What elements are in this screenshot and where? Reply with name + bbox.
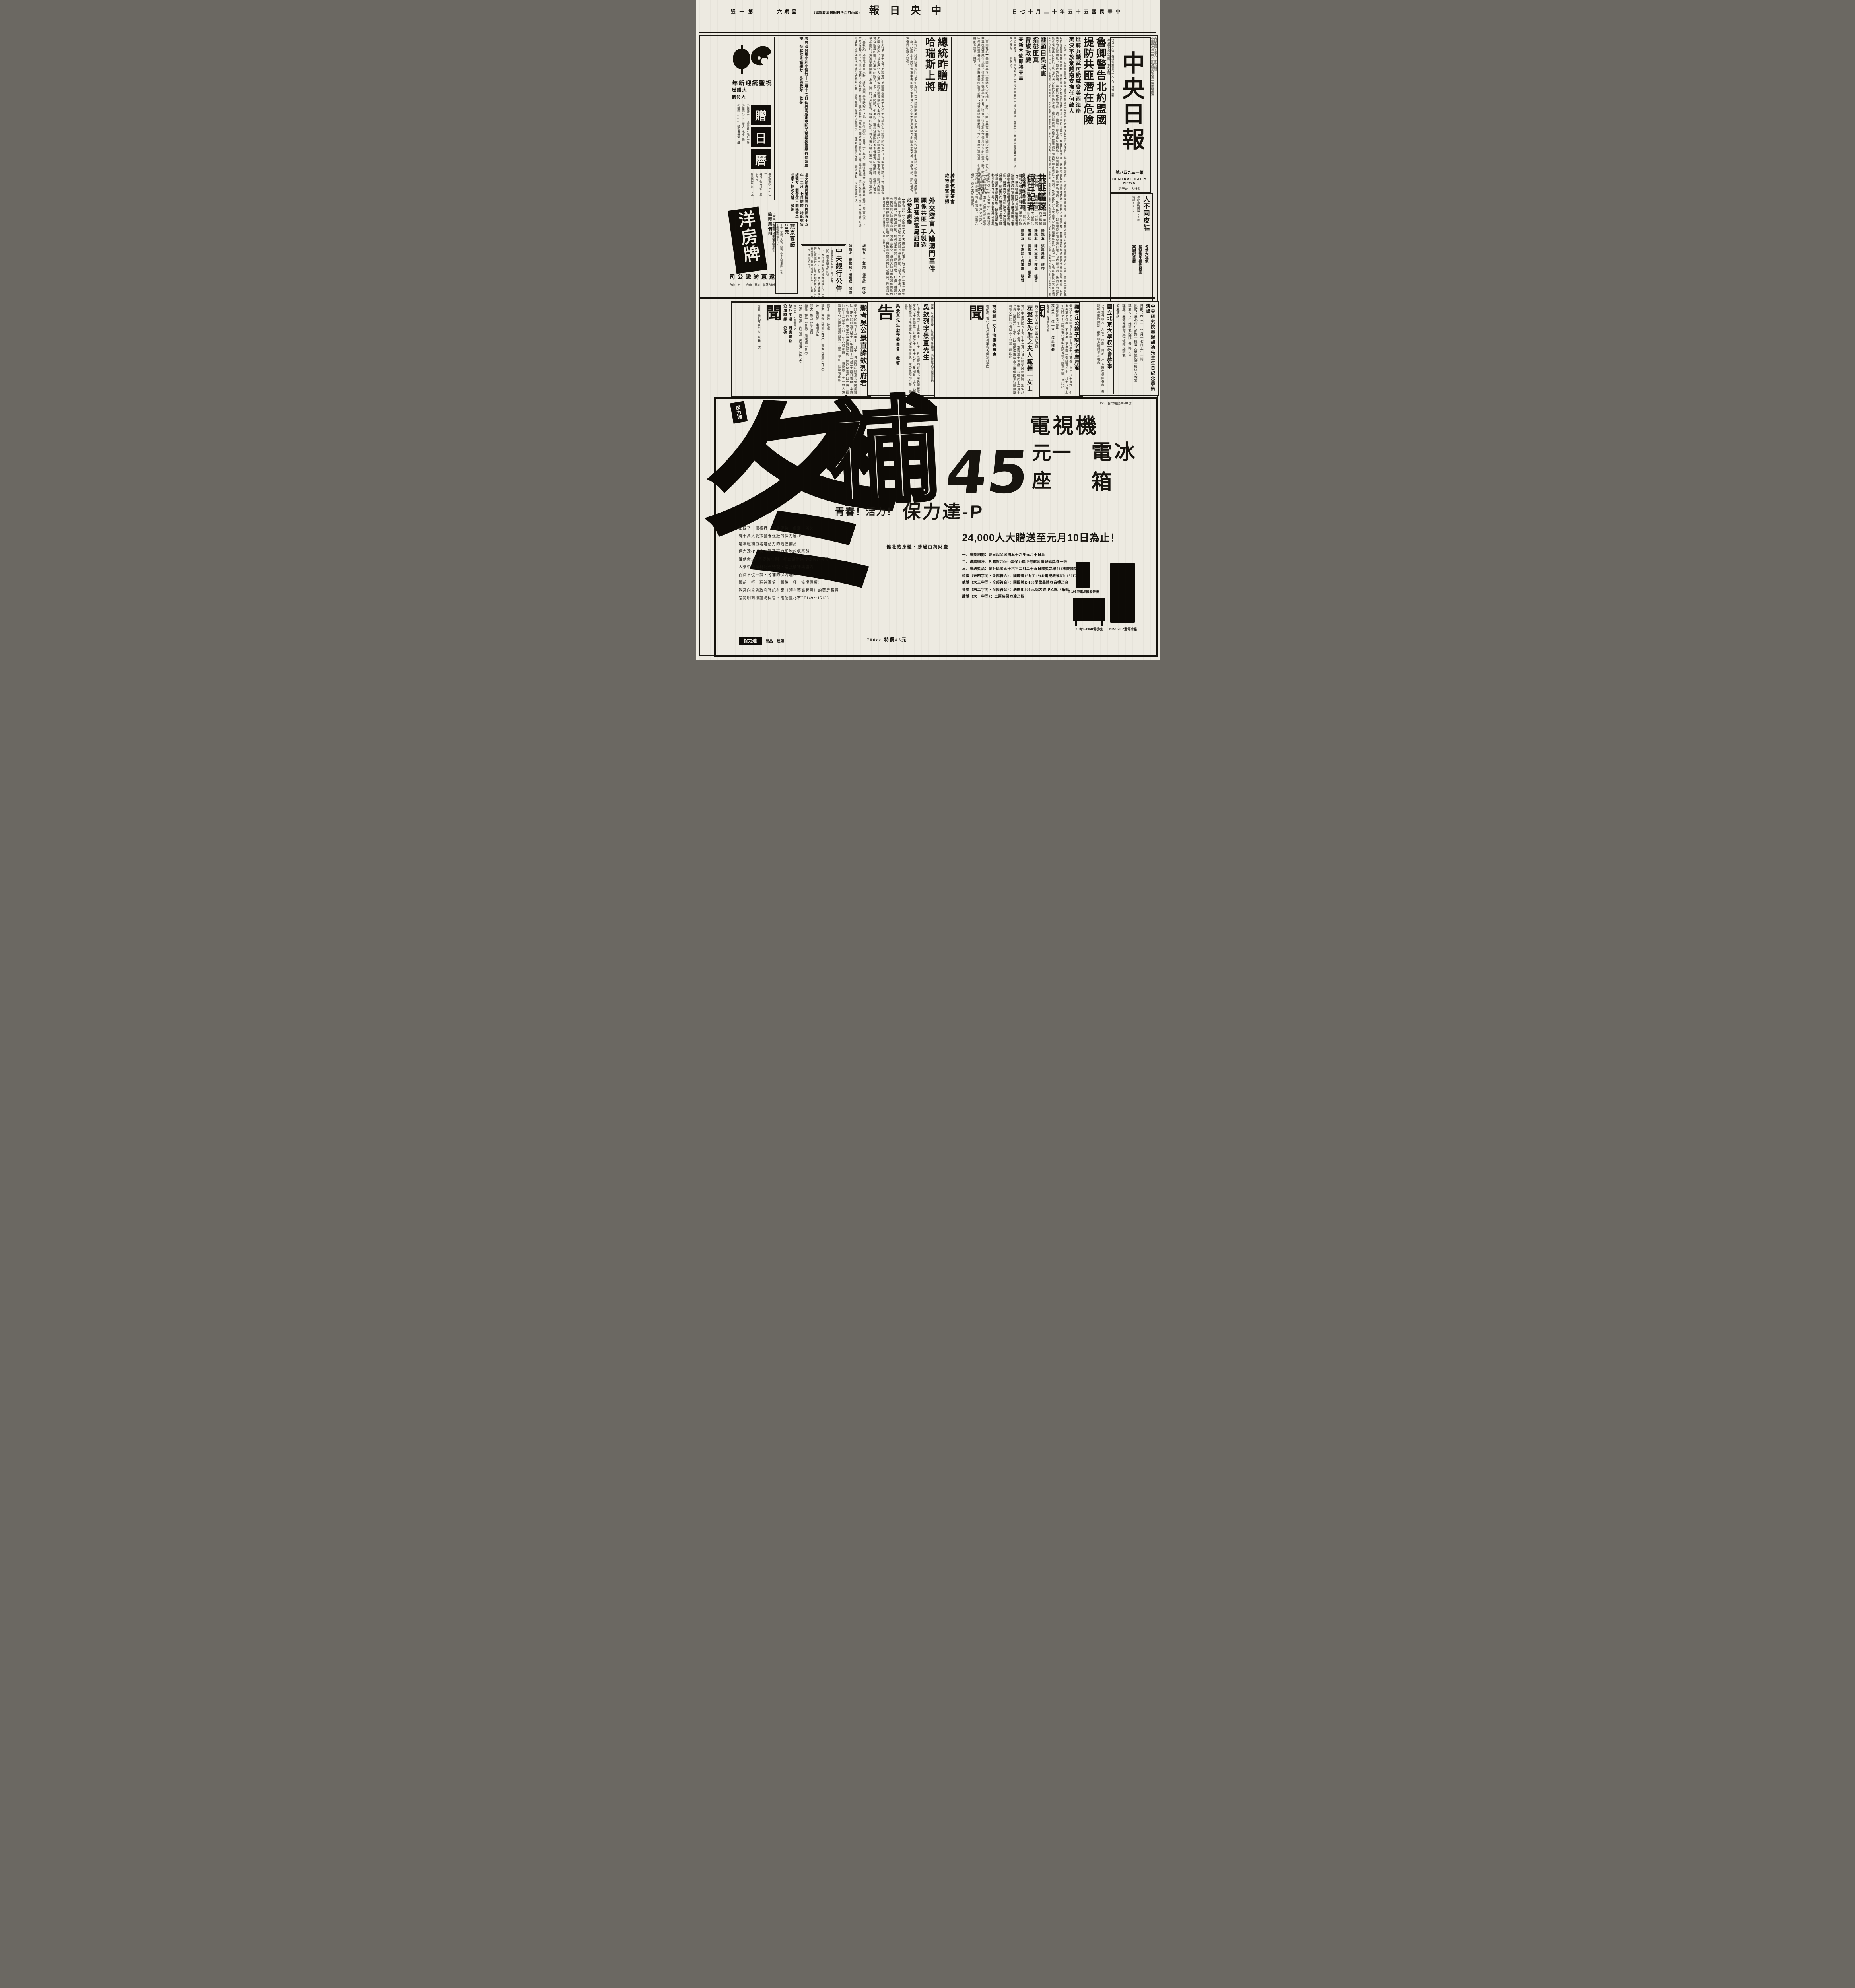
masthead-price: 今日二大張 每份售新臺幣一元二角 港幣二毫 [1110,39,1113,165]
bank-side-notice: 諸親友 鄭盛杞・張理房 謹啓 [843,244,853,296]
lead-headline-2: 提防共匪潛在危險 [1082,37,1093,297]
harris-headline-1: 總統昨贈勳 [936,37,947,195]
yanjing-price: 20元 [784,224,789,292]
fridge-caption: NR-150FZ型電冰箱 [1105,627,1141,631]
shoes-ad-phone: 電話6579 [1132,196,1136,243]
obituary-wugao-titles: 前兵工生產署署長 行政院經合會顧問 高雄硫酸錏公司董事長 [930,304,934,394]
prize-rule-row: 肆獎（末一字同）：二兩裝保力達乙瓶 [962,593,1090,600]
gift-item: ③購滿一○○○元贈毛巾禮盒一組 [736,104,740,196]
lead-subhead-1: 匪窮兵黷武可能威脅美西海岸 [1075,37,1080,297]
header-rule [699,32,1156,33]
bank-notice-docno: （55）臺央業字第1560號 [825,247,829,299]
bolida-winter-ad: （55）台財稅證09991號 保力達 冬 補 電視機 45 元一座 電冰箱 青春… [714,397,1158,657]
special-price-item: 男厚絨襯衫 二九七元 [763,173,771,198]
greeting-notice: 諸親友 陳林宜慧・陳健 謹啓 [1034,229,1039,296]
ad-copy-line: 歡迎向全省政府登記有案（領有藥商牌照）的藥房購買 [739,587,878,595]
harris-headline-group: 總統昨贈勳 哈瑞斯上將 [919,37,952,195]
tv-leg-left [1075,621,1077,626]
wedding-notice-1: 次男海與馬小利小姐於十二月十七日在美國威州克利夫蘭城教堂舉行結婚典禮 特此敬告諸… [777,37,809,170]
harris-headline-2: 哈瑞斯上將 [924,37,935,195]
family-member-row: 未亡人 吳夏承玖 [793,304,797,394]
winter-sale-line: 冬季大減價 [1144,245,1150,299]
family-member-row: 孤女 南強（適許・在美） 東安（適周・在美） [821,304,825,394]
harris-story: 【軍聞社訊】美國太平洋空軍總司令哈瑞斯上將，已結束其在中華民國的訪問日程，定於十… [868,37,990,195]
yanjing-sellers: 正中、文源、文化、幼獅、中央文物供應社有售 [779,224,783,292]
header-strip: 張一第 六期星 （誌雜期星送附日今戶訂內國） 報日央中 日七十月二十年五十五國民… [696,0,1160,21]
obituary-wu-mourner: 泣血稽顙 泣啓 [783,304,787,394]
obituary-jiang-note: 閤族均陷不陸不列載 [1055,304,1059,394]
ad-copy-line: 保力達-P・含有製造精力細胞的氨基酸 [739,548,878,556]
extra-notice: 諸親友 于高翔・偶雷琪 敬啓 [855,244,866,296]
ad-copy-line: 有十萬人愛飲營養強壯的保力達-P [739,533,878,540]
tv-silhouette [1073,598,1105,621]
santa-promo-label: 送贈大 [732,88,773,93]
ad-outline-character-bu: 補 [824,394,943,513]
section-label: 張一第 [731,8,757,15]
ad-copy-lines: 忙碌了一個禮拜・全身疲勞・虛弱・倦怠有十萬人愛飲營養強壯的保力達-P是年輕補血增… [739,525,878,603]
paper-title-horizontal: 報日央中 [869,2,952,17]
lead-subhead-2: 美決不放棄越南安撫任何敵人 [1068,37,1074,297]
ad-bottom-label-1: 出品 [766,638,773,643]
news-text-column: 【本報訊】外交部發言人昨天論及澳門事件時指出：此一事件顯係由共匪一手製造，圖迫葡… [809,37,866,227]
gift-item: ②購滿八○○元贈大方毛巾一條 [741,104,745,196]
academia-title: 中央研究院舉辦胡適先生生日紀念學術演講 [1145,304,1155,394]
expel-subhead: 說他們造謠誹謗 [1020,173,1025,227]
macau-story: 外交發言人論澳門事件 顯係共匪一手製造 圖迫葡澳當局屈服 必發生劇變 【本報訊】… [868,197,936,296]
harris-body-right: 【軍聞社訊】美國太平洋空軍總司令哈瑞斯上將，已結束其在中華民國的訪問日程，定於十… [954,37,989,195]
peng-headline-line1: 匪頭目吳法憲 [1039,37,1046,172]
bank-notice-title: 中央銀行公告 [834,247,841,299]
calendar-character: 日 [751,127,771,147]
fridge-silhouette [1110,563,1135,623]
peng-sidehead: 委新大使即將來華 [1018,37,1023,172]
weekday-label: 六期星 [777,8,799,15]
peng-body: 匪偽廣播稱，彭匪真在所謂「文化大革命」中被指曾謀「政變」；共匪內部清算鬥爭，現已… [1005,37,1017,172]
yanjing-account: 郵撥七一三六號栗明德帳戶 [771,224,775,292]
prize-rule-row: 頭獎（末四字同・全部符合）：國際牌19吋T-196D電視機或NR-150FZ（白… [962,573,1090,580]
santa-special-label: 價特大 [732,95,746,100]
peng-headline-line2: 指彭匪真 [1032,37,1038,172]
macau-subhead-2: 圖迫葡澳當局屈服 [913,197,919,296]
macau-body: 【本報訊】外交部發言人昨天論及澳門事件時指出：此一事件顯係由共匪一手製造，圖迫葡… [883,197,905,296]
ad-copy-line: 請認明商標謹防假冒・電話臺北市FE149～15138 [739,595,878,602]
column-rule [1047,37,1048,297]
bank-notice-date: 中華民國五十五年十二月十五日 [829,247,833,299]
academia-detail-line: 歡迎聽講 [1115,304,1120,394]
beida-title: 國立北京大學校友會啓事 [1106,304,1114,394]
obituary-zuo-header: 左潞生先生之夫人臧鍾一女士 [1026,305,1033,394]
yangfang-brand-box: 洋房牌 [728,206,767,274]
ad-slogan-prefix: 青春！活力！ [835,504,897,518]
macau-headline: 外交發言人論澳門事件 [927,197,934,296]
ad-copy-line: 百病不侵一試・冬補的保力達-P [739,572,878,579]
family-member-row: 孤子 鑄遠 鍊遠 [826,304,831,394]
prize-rule-row: 三、贈送獎品：統計民國五十六年二月二十五日開獎之第458期愛國獎券第一特獎號碼 [962,565,1090,573]
yanjing-ad: 燕京舊語 20元 正中、文源、文化、幼獅、中央文物供應社有售 直接郵購特價十六元… [775,222,798,294]
header-rule-thin [699,34,1156,34]
ad-copy-line: 忙碌了一個禮拜・全身疲勞・虛弱・倦怠 [739,525,878,533]
ad-bottom-row: 保力達 出品 經銷 [739,637,784,645]
lead-headline-1: 魯卿警告北約盟國 [1095,37,1106,297]
radio-silhouette [1076,562,1090,588]
obituary-zuo-body: 慟於中華民國五十五年十二月八日病逝榮民總醫院 距生於中華民國三年七月十三日 享壽… [996,305,1024,394]
masthead-inner: 中央日報 今日二大張 每份售新臺幣一元二角 港幣二毫 地址臺北市中正路一七九五號 [1112,39,1149,165]
greeting-notice: 諸親友 張馬景武 謹啓 [1041,229,1045,296]
family-member-row: 孫女 毅華（均在美） [810,304,814,394]
issue-number: 號八四九三一第 [1112,168,1147,175]
yangfang-brand: 洋房牌 [734,210,761,271]
ad-promo-headline: 24,000人大贈送至元月10日為止！ [962,530,1121,544]
yanjing-title: 燕京舊語 [789,224,794,292]
date-line: 日七十月二十年五十五國民華中 [1012,8,1124,15]
obituary-wu-family-rows: 孤子 鑄遠 鍊遠孤女 南強（適許・在美） 東安（適周・在美）媳 張奧英 李順茂華… [793,304,831,394]
bank-notice-item-2: 二、特此公告。 [806,247,810,299]
ad-product-tv: 電視機 [1030,409,1099,439]
prize-rule-row: 二、贈獎辦法：凡購買700cc.裝保力達-P每瓶附送號碼獎券一張 [962,559,1090,566]
radio-caption: R-105型電晶體收音機 [1066,590,1101,594]
obituary-wu-big-char: 聞 [763,304,780,394]
greeting-notice: 諸親友 張禹湘・馮瑩 謹啓 [1027,229,1032,296]
publisher-line: 芬聖曹 人行發 [1112,186,1147,191]
tv-leg-right [1101,621,1103,626]
harris-body-left: 【本報訊】蔣總統曾於昨日下午五時，在官邸贈勳美國太平洋空軍總司令哈瑞斯上將，頒贈… [886,37,917,195]
academy-announcements: 中央研究院舉辦胡適先生生日紀念學術演講 日期：本（十二）月十七日上午十時地點：臺… [1079,301,1159,396]
ad-slogan-sub: 健壯的身體・勝過百萬財產 [887,545,949,550]
ad-bottom-label-2: 經銷 [777,638,784,643]
ad-price-number: 45 [944,449,1030,496]
obituary-zuo-contact: 聯絡處：臺北市合江街省立中興大學法商學院 [985,305,990,394]
macau-sidehead: 必發生劇變 [907,197,912,296]
masthead-english: CENTRAL DAILY NEWS [1112,176,1147,185]
column-rule [937,37,937,297]
masthead-title: 中央日報 [1115,39,1148,165]
greeting-notice: 諸親友 于高翔・偶雷琪 敬啓 [1020,229,1025,296]
obituary-jiang-mourner: 孤哀子 江一平 泣血稽顙 [1051,304,1055,394]
expel-headline-1: 共匪驅逐 [1037,173,1046,227]
central-bank-notice: 中央銀行公告 中華民國五十五年十二月十五日 （55）臺央業字第1560號 一、本… [801,244,846,302]
shoes-ad: 大不同皮鞋 臺北市衡陽路94號 電話6579 [1110,193,1153,245]
family-member-row: 媳 張奧英 李順茂華 [815,304,820,394]
obituary-wu-address: 喪居：臺北市泉州街十八巷二號 [757,304,761,394]
shoes-ad-address: 臺北市衡陽路94號 [1136,196,1140,243]
obituary-jiang-header: 顯考江公諱子誠字紫塵府君 [1074,304,1079,394]
bank-notice-item-1: 一、本行經與財政部會商決定，自本年十二月十五日起，本行委託臺灣銀行在其總分支行所… [811,247,824,299]
ad-copy-line: 維他命B群基礎強壯劑・補血幫助恢復疲勞的養分 [739,556,878,564]
ad-bottom-brand: 保力達 [739,637,762,645]
lead-body: 【中央社巴黎十五日美聯電】美國國務卿魯斯克今天告訴大西洋聯盟的伙伴們，共匪窮兵黷… [1049,37,1067,297]
column-rule [1109,37,1109,297]
santa-special-list: 男厚絨襯衫 二九七元男格子呢兩用衫 三五九元男長袖衛生衫 五九七元女長袖棉毛衫 … [751,173,772,198]
registration-line-2: 內版臺誌字第九三號登記證 [1153,37,1156,188]
special-price-item: 男長袖衛生衫 五九七元 [751,173,754,198]
masthead-footer: 號八四九三一第 CENTRAL DAILY NEWS 芬聖曹 人行發 [1112,168,1147,191]
santa-ad-title: 年新迎誕聖祝 [730,80,774,87]
calendar-gift: 贈日曆 [751,105,771,172]
ad-slogan-row: 青春！活力！ 保力達-P [835,497,984,524]
academia-detail-line: 講題：臺灣鼻咽癌流行地區之研究 [1121,304,1126,394]
column-rule [867,37,867,297]
lead-story: 魯卿警告北約盟國 提防共匪潛在危險 匪窮兵黷武可能威脅美西海岸 美決不放棄越南安… [1048,37,1108,297]
shoes-ad-name: 大不同皮鞋 [1142,196,1149,243]
masthead-box: 中央日報 今日二大張 每份售新臺幣一元二角 港幣二毫 地址臺北市中正路一七九五號… [1110,37,1151,193]
calendar-character: 贈 [751,105,771,125]
family-member-row: 學孫 許平（在美） 周鼎澔（在美） [804,304,808,394]
academia-detail-line: 日期：本（十二）月十七日上午十時 [1139,304,1144,394]
obituary-band-rule [700,297,1155,299]
obituary-wugao-body: 於中華民國五十五年十二月十二日辰時病逝臺北榮民總醫院 享年七十有四歲 茲擇於十二… [900,304,920,394]
gift-item: ①購滿三○○元贈實用小毛巾一條 [746,104,750,196]
academia-detail-line: 講演人：中央研究院院士葉曙先生 [1127,304,1132,394]
ad-tax-number: （55）台財稅證09991號 [1098,401,1132,406]
greeting-notices: 諸親友 張馬景武 謹啓諸親友 陳林宜慧・陳健 謹啓諸親友 張禹湘・馮瑩 謹啓諸親… [938,229,1047,296]
obituary-zuo-big-char: 聞 [967,305,983,394]
peng-headline-line3: 曾謀政變 [1024,37,1031,172]
obituary-wugao-header: 吳欽烈字景直先生 [922,304,929,394]
ad-slogan-brand: 保力達-P [901,497,985,524]
yangfang-company: 司公織紡東遠 [730,274,777,280]
academia-lines: 日期：本（十二）月十七日上午十時地點：臺北市仁愛路一段臺大醫學院二樓綜合教室講演… [1115,304,1144,394]
subscriber-note: （誌雜期星送附日今戶訂內國） [812,10,862,15]
calendar-character: 曆 [751,149,771,169]
news-text-column: 【中央社巴黎十五日美聯電】美國國務卿魯斯克今天告訴大西洋聯盟的伙伴們，共匪窮兵黷… [868,37,885,195]
obituary-jiang-contact: 聯絡處：立法院交際科 [1046,304,1050,394]
academia-detail-line: 地點：臺北市仁愛路一段臺大醫學院二樓綜合教室 [1133,304,1138,394]
column-rule [774,37,774,297]
ad-copy-line: 飯前一杯・精神百倍・飯後一杯・恢復疲勞！ [739,579,878,587]
winter-sale-line: 案頭紀事曆 [1132,245,1137,299]
ad-bottom-note: 700cc.特價45元 [867,637,907,643]
beida-body: 本日為母校六十八週年校慶 訂於下午五時在僑園餐敘 恭請師長蒞臨致訓 歡迎校友踴躍… [1093,304,1105,394]
obituary-jiang-big-char: 聞 [1039,304,1045,394]
column-rule [991,37,991,297]
expel-headline-2: 俄三記者 [1026,173,1035,227]
ad-product-fridge: 電冰箱 [1091,435,1155,495]
ad-copy-line: 人參中西藥材配合特製・增強精神與體力 [739,564,878,571]
ad-price-suffix: 元一座 [1032,437,1087,493]
newspaper-page: 張一第 六期星 （誌雜期星送附日今戶訂內國） 報日央中 日七十月二十年五十五國民… [696,0,1160,660]
ad-copy-line: 是年輕補血增進活力的最佳補品 [739,541,878,548]
santa-ad: 年新迎誕聖祝 送贈大 ①購滿三○○元贈實用小毛巾一條②購滿八○○元贈大方毛巾一條… [730,37,775,200]
obituary-zuo-committee: 故臧鍾一女士治喪委員會 [991,305,995,394]
obituary-jiang: 顯考江公諱子誠字紫塵府君 慟於中華民國五十五年十月三十日棄養 享年八十有六 不孝… [1039,301,1083,397]
ad-price-row: 45 元一座 電冰箱 [946,435,1156,496]
obituary-wugao-committee: 吳景直先生治喪委員會 敬啓 [895,304,899,394]
prize-rule-row: 貳獎（末三字同・全部符合）：國際牌R-105型電晶體收音機乙台 [962,579,1090,586]
obituary-jiang-body: 慟於中華民國五十五年十月三十日棄養 享年八十有六 不孝男萬平侍疾 不孝男一平供職… [1060,304,1072,394]
prize-rule-row: 一、贈獎期間：即日起至民國五十六年元月十日止 [962,551,1090,559]
obituary-zuo: 省立中興大學法商學院院長 左潞生先生之夫人臧鍾一女士 慟於中華民國五十五年十二月… [934,301,1043,398]
santa-illustration [731,38,773,80]
yangfang-note-2: 臨時廉價部 [767,212,771,272]
macau-subhead-1: 顯係共匪一手製造 [920,197,926,296]
obituary-wu-note: 恕訃不週 鼎惠懇辭 [788,304,792,394]
winter-sale-ad: 冬季大減價聖誕新年禮物最宜案頭紀事曆 [1110,243,1153,301]
peng-story: 匪頭目吳法憲 指彭匪真 曾謀政變 委新大使即將來華 匪偽廣播稱，彭匪真在所謂「文… [992,37,1047,172]
special-price-item: 男格子呢兩用衫 三五九元 [754,173,762,198]
yanjing-mail: 直接郵購特價十六元 [775,224,779,292]
family-member-row: 外孫 許嘉浩 許嘉鴻 周道淇（均在美） [798,304,803,394]
winter-sale-line: 聖誕新年禮物最宜 [1138,245,1143,299]
santa-gift-list: ①購滿三○○元贈實用小毛巾一條②購滿八○○元贈大方毛巾一條③購滿一○○○元贈毛巾… [732,104,750,196]
